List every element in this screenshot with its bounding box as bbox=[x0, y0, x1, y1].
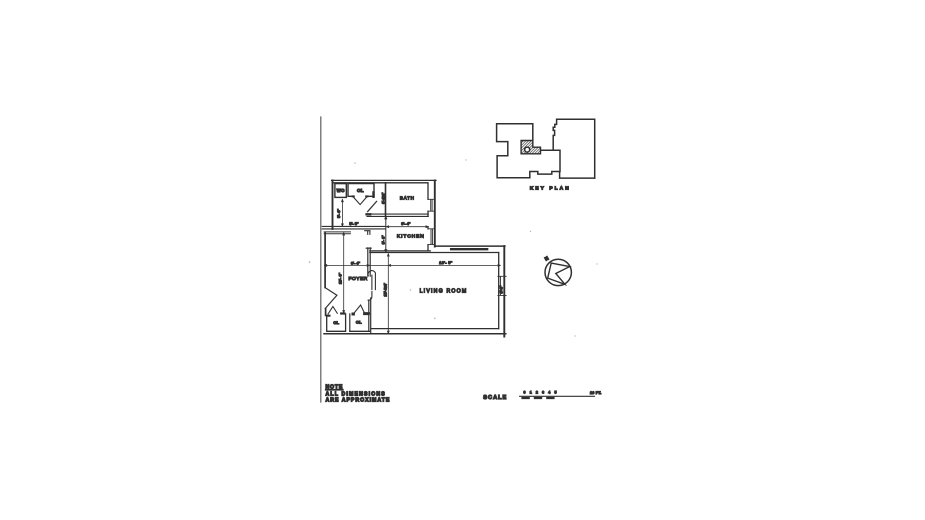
svg-text:CL: CL bbox=[356, 319, 362, 324]
svg-text:CL: CL bbox=[333, 320, 339, 325]
svg-text:3: 3 bbox=[542, 391, 544, 395]
svg-text:5'- 5": 5'- 5" bbox=[349, 221, 359, 226]
svg-text:SCALE: SCALE bbox=[483, 395, 507, 401]
svg-text:18'- 5": 18'- 5" bbox=[439, 260, 453, 265]
svg-text:5: 5 bbox=[555, 391, 557, 395]
svg-text:2: 2 bbox=[536, 391, 538, 395]
svg-text:4: 4 bbox=[548, 391, 550, 395]
svg-text:LIVING ROOM: LIVING ROOM bbox=[420, 288, 468, 294]
svg-text:10'- 0": 10'- 0" bbox=[337, 272, 342, 284]
svg-text:0: 0 bbox=[524, 391, 526, 395]
svg-text:1: 1 bbox=[530, 391, 532, 395]
svg-text:ARE APPROXIMATE: ARE APPROXIMATE bbox=[326, 397, 391, 403]
svg-text:10 FT.: 10 FT. bbox=[590, 391, 602, 395]
svg-text:3'-1¾": 3'-1¾" bbox=[380, 192, 385, 204]
svg-text:KEY PLAN: KEY PLAN bbox=[530, 185, 571, 191]
svg-text:8'- 8": 8'- 8" bbox=[381, 235, 386, 245]
svg-text:3'-0": 3'-0" bbox=[499, 285, 504, 294]
svg-text:FOYER: FOYER bbox=[349, 276, 368, 282]
svg-text:NOTE: NOTE bbox=[326, 385, 344, 391]
svg-text:15'-3¾": 15'-3¾" bbox=[383, 282, 388, 296]
svg-text:CL: CL bbox=[357, 188, 364, 193]
svg-text:WC: WC bbox=[337, 188, 345, 193]
svg-text:BATH: BATH bbox=[400, 195, 415, 200]
svg-text:9'- 4": 9'- 4" bbox=[401, 221, 411, 226]
svg-text:5'- 3": 5'- 3" bbox=[336, 208, 341, 218]
svg-text:6'- 4": 6'- 4" bbox=[351, 261, 361, 266]
svg-text:KITCHEN: KITCHEN bbox=[397, 234, 425, 240]
